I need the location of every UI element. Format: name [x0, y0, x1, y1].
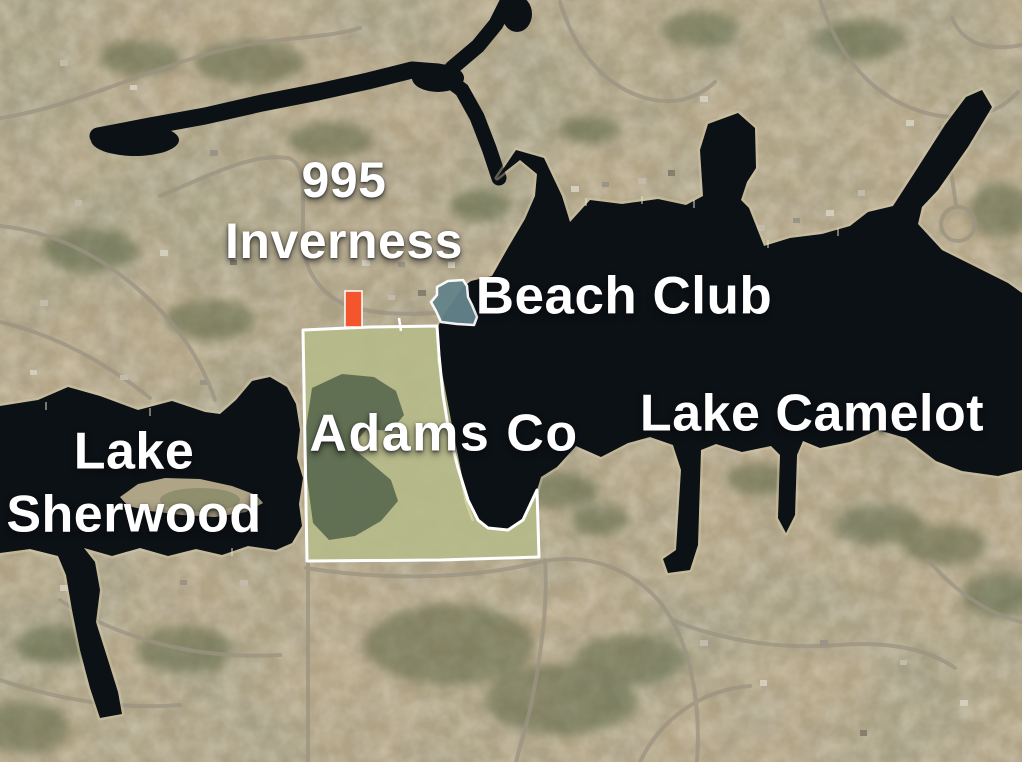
label-beach-club: Beach Club	[476, 265, 773, 330]
aerial-map-screenshot: 995 Inverness Beach Club Lake Camelot Ad…	[0, 0, 1022, 762]
label-address-number: 995	[225, 150, 463, 211]
label-lake-camelot: Lake Camelot	[640, 382, 984, 445]
label-lake-sherwood: Lake Sherwood	[6, 421, 261, 548]
label-address-street: Inverness	[225, 211, 463, 272]
lot-marker-995	[345, 291, 362, 327]
label-995-inverness: 995 Inverness	[225, 150, 463, 272]
aerial-basemap	[0, 0, 1022, 762]
label-adams-co: Adams Co	[309, 402, 578, 465]
